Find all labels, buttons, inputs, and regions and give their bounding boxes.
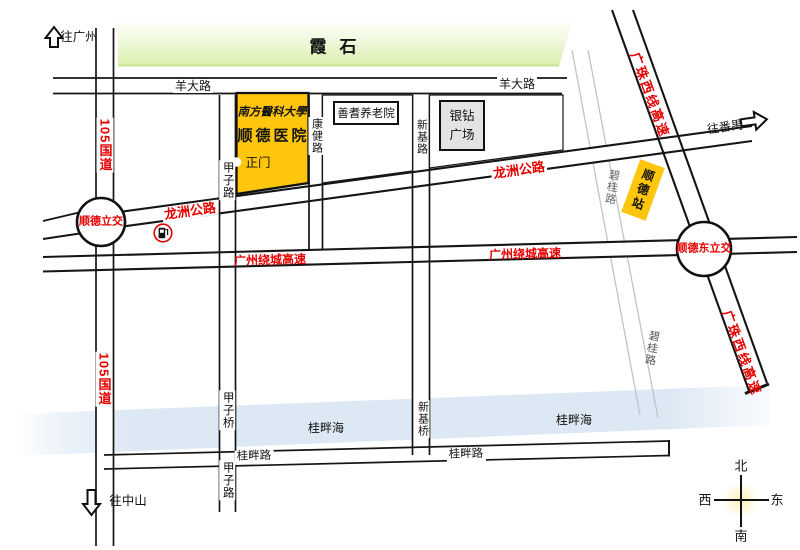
junction-shunde-label: 顺德立交: [79, 217, 123, 228]
nursing-home-label: 善耆养老院: [337, 105, 395, 121]
road-yangda-band: [53, 78, 567, 94]
road-kangjian-label: 康健路: [309, 117, 324, 155]
map-canvas: 霞石 往广州 往中山 往番禺 105国道 105国道 羊大路 羊大路 甲子路 甲…: [0, 0, 800, 550]
compass-rose: [714, 475, 769, 527]
compass-east-label: 东: [770, 494, 783, 507]
nursing-home-box: 善耆养老院: [333, 101, 399, 125]
road-yangda-label-left: 羊大路: [173, 79, 213, 93]
xiashi-label: 霞石: [297, 39, 370, 56]
road-guipan-label-right: 桂畔路: [447, 448, 486, 463]
yinzuan-plaza-box: 银钻广场: [439, 100, 485, 151]
road-jiazi-label-top: 甲子路: [219, 160, 235, 200]
road-105-label-bottom: 105国道: [96, 352, 113, 407]
map-graphics: [0, 0, 800, 550]
compass-south-label: 南: [734, 530, 747, 543]
compass-north-label: 北: [734, 460, 747, 473]
hospital-gate-label: 正门: [245, 157, 270, 170]
road-jiazi-band: [220, 95, 236, 512]
road-yangda-label-right: 羊大路: [497, 77, 537, 91]
road-105-label-top: 105国道: [97, 118, 114, 173]
guipan-sea-label-right: 桂畔海: [556, 414, 592, 426]
road-jiazi-label-bottom: 甲子路: [219, 460, 235, 500]
hospital-university-label: 南方醫科大學: [238, 106, 307, 118]
to-zhongshan-label: 往中山: [109, 495, 147, 508]
compass-west-label: 西: [698, 494, 711, 507]
road-ring-label-right: 广州绕城高速: [489, 247, 561, 261]
gas-station-icon: [154, 224, 172, 242]
jiazi-bridge-label: 甲子桥: [219, 390, 235, 430]
road-xinji-label: 新基路: [414, 118, 429, 156]
junction-shunde-east-label: 顺德东立交: [677, 244, 732, 255]
road-guipan-label-left: 桂畔路: [235, 450, 274, 465]
hospital-name-label: 顺德医院: [234, 129, 309, 144]
to-guangzhou-label: 往广州: [60, 31, 98, 44]
yinzuan-plaza-label: 银钻广场: [448, 107, 476, 145]
xinji-bridge-label: 新基桥: [415, 400, 430, 438]
guipan-sea-label-left: 桂畔海: [308, 422, 344, 434]
road-bands: [43, 10, 797, 546]
road-ring-label-left: 广州绕城高速: [234, 253, 306, 267]
